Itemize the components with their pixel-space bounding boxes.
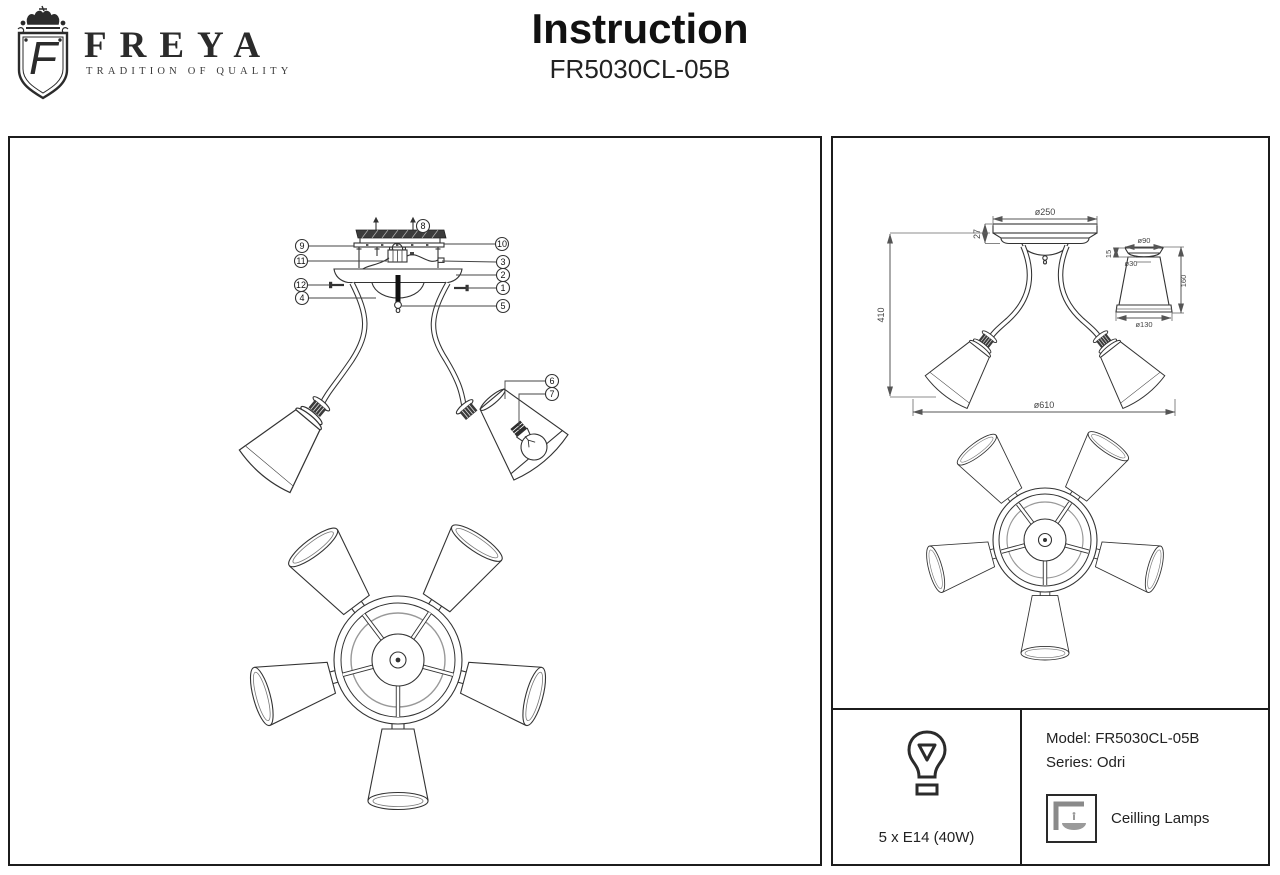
shade-detail-view (1116, 248, 1172, 312)
callout-1: 1 (497, 282, 510, 295)
svg-text:1: 1 (500, 283, 505, 293)
callout-9: 9 (296, 240, 309, 253)
callout-3: 3 (497, 256, 510, 269)
lamp-arms (322, 283, 464, 406)
svg-text:8: 8 (420, 221, 425, 231)
callout-12: 12 (295, 279, 308, 292)
svg-text:ø90: ø90 (1138, 236, 1151, 245)
dim-shade-bottom-diameter: ø130 (1116, 312, 1172, 329)
shade-left (236, 380, 348, 496)
callout-7: 7 (546, 388, 559, 401)
svg-text:ø250: ø250 (1035, 207, 1056, 217)
mounting-screws (374, 218, 415, 231)
callout-5: 5 (497, 300, 510, 313)
callout-4: 4 (296, 292, 309, 305)
svg-text:ø30: ø30 (1125, 259, 1138, 268)
category-row: Ceilling Lamps (1046, 794, 1209, 843)
ceiling-lamp-icon (1046, 794, 1097, 843)
svg-text:3: 3 (500, 257, 505, 267)
dim-shade-top-diameter: ø90 (1125, 236, 1163, 247)
bulb-spec-label: 5 x E14 (40W) (879, 829, 975, 846)
svg-text:7: 7 (549, 389, 554, 399)
freya-logo-shield: F (6, 2, 84, 102)
callout-10: 10 (496, 238, 509, 251)
ceiling-mount-bar (356, 230, 446, 243)
svg-text:27: 27 (972, 229, 982, 239)
bulb-icon (903, 729, 951, 821)
bottom-view-small (923, 427, 1167, 660)
exploded-view-panel: 1 2 3 4 5 6 7 8 9 10 11 12 (8, 136, 822, 866)
svg-text:10: 10 (497, 239, 507, 249)
svg-text:2: 2 (500, 270, 505, 280)
bulb (505, 416, 552, 465)
svg-text:5: 5 (500, 301, 505, 311)
exploded-view-drawing: 1 2 3 4 5 6 7 8 9 10 11 12 (10, 138, 820, 864)
model-cell: Model: FR5030CL-05B Series: Odri Ceillin… (1022, 710, 1268, 864)
bulb-spec-cell: 5 x E14 (40W) (833, 710, 1022, 864)
callout-6: 6 (546, 375, 559, 388)
series-label: Series: Odri (1046, 754, 1268, 771)
svg-text:12: 12 (296, 280, 306, 290)
dimension-drawing: ø250 27 410 ø610 (833, 138, 1268, 708)
svg-text:6: 6 (549, 376, 554, 386)
svg-text:410: 410 (876, 307, 886, 322)
info-panel: 5 x E14 (40W) Model: FR5030CL-05B Series… (831, 708, 1270, 866)
page-subtitle: FR5030CL-05B (420, 54, 860, 85)
socket-right (455, 398, 480, 422)
center-rod (395, 275, 402, 313)
crown-icon (18, 6, 68, 33)
svg-text:9: 9 (299, 241, 304, 251)
model-label: Model: FR5030CL-05B (1046, 730, 1268, 747)
category-label: Ceilling Lamps (1111, 810, 1209, 827)
brand-name: FREYA (84, 24, 273, 67)
svg-text:ø130: ø130 (1135, 320, 1152, 329)
callout-2: 2 (497, 269, 510, 282)
svg-text:160: 160 (1179, 275, 1188, 288)
bottom-view-large (246, 519, 550, 809)
page-title: Instruction (420, 8, 860, 50)
canopy-side-view (993, 224, 1097, 264)
callout-11: 11 (295, 255, 308, 268)
instruction-sheet: F FREYA TRADITION OF QUALITY Instruction… (0, 0, 1280, 875)
dimension-panel: ø250 27 410 ø610 (831, 136, 1270, 710)
svg-text:4: 4 (299, 293, 304, 303)
svg-text:15: 15 (1104, 250, 1113, 258)
callout-8: 8 (417, 220, 430, 233)
brand-tagline: TRADITION OF QUALITY (86, 66, 292, 77)
svg-text:11: 11 (296, 256, 305, 266)
svg-text:ø610: ø610 (1034, 400, 1055, 410)
canopy-screw-left (329, 282, 344, 288)
dim-canopy-diameter: ø250 (993, 207, 1097, 226)
title-block: Instruction FR5030CL-05B (420, 8, 860, 85)
logo-letter: F (29, 32, 60, 84)
